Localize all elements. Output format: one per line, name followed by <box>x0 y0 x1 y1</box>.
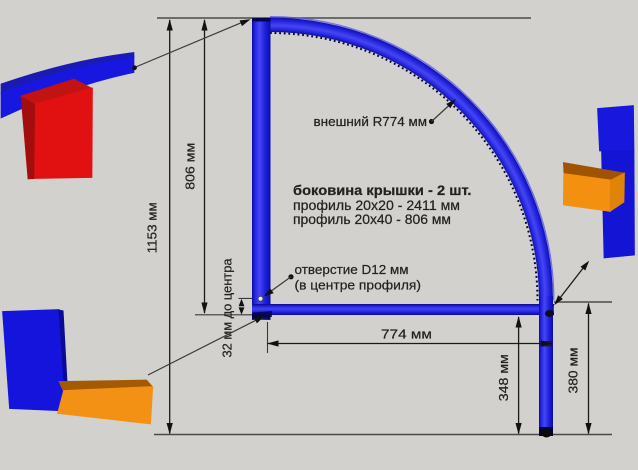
svg-text:(в центре профиля): (в центре профиля) <box>295 278 422 293</box>
svg-text:профиль 20x40 - 806 мм: профиль 20x40 - 806 мм <box>293 212 451 227</box>
svg-text:806 мм: 806 мм <box>183 143 198 190</box>
svg-text:профиль 20x20 - 2411 мм: профиль 20x20 - 2411 мм <box>293 198 460 213</box>
svg-text:32 мм до центра: 32 мм до центра <box>220 258 235 358</box>
svg-text:отверстие D12 мм: отверстие D12 мм <box>295 262 409 277</box>
svg-text:774 мм: 774 мм <box>381 327 432 342</box>
svg-text:380 мм: 380 мм <box>565 348 580 394</box>
svg-text:внешний R774 мм: внешний R774 мм <box>314 114 428 129</box>
svg-text:боковина крышки - 2 шт.: боковина крышки - 2 шт. <box>293 182 472 198</box>
svg-text:1153 мм: 1153 мм <box>145 202 160 253</box>
svg-text:348 мм: 348 мм <box>496 354 511 401</box>
